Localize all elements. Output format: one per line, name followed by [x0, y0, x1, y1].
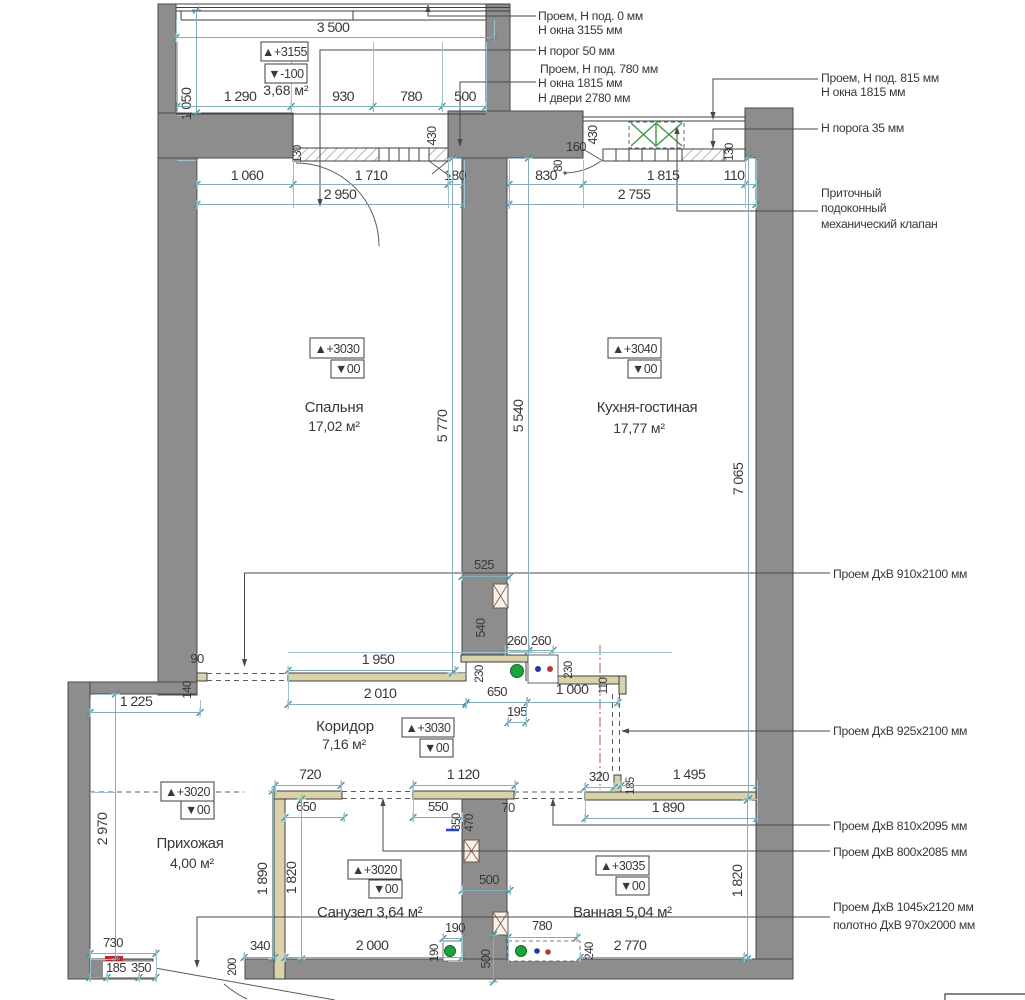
svg-text:1 815: 1 815 — [647, 168, 680, 184]
svg-text:2 755: 2 755 — [618, 187, 651, 203]
svg-text:Кухня-гостиная: Кухня-гостиная — [597, 399, 698, 416]
svg-text:780: 780 — [400, 89, 423, 105]
svg-text:Санузел 3,64 м²: Санузел 3,64 м² — [317, 904, 423, 921]
svg-text:190: 190 — [429, 944, 441, 962]
svg-text:525: 525 — [474, 557, 494, 572]
svg-text:▼00: ▼00 — [373, 882, 399, 896]
svg-text:17,77 м²: 17,77 м² — [613, 420, 665, 436]
svg-text:Н порога 35 мм: Н порога 35 мм — [821, 121, 904, 135]
svg-text:780: 780 — [532, 918, 552, 933]
svg-text:7 065: 7 065 — [731, 462, 747, 495]
svg-text:470: 470 — [464, 814, 476, 832]
svg-text:Проем ДхВ 925х2100 мм: Проем ДхВ 925х2100 мм — [833, 724, 967, 738]
svg-text:500: 500 — [479, 949, 493, 969]
svg-text:130: 130 — [724, 143, 736, 161]
svg-text:▼00: ▼00 — [424, 741, 450, 755]
svg-text:7,16 м²: 7,16 м² — [322, 736, 367, 752]
svg-text:1 890: 1 890 — [255, 862, 271, 895]
svg-text:350: 350 — [131, 960, 151, 975]
svg-text:1 820: 1 820 — [284, 861, 300, 894]
svg-text:190: 190 — [445, 920, 465, 935]
svg-text:▲+3030: ▲+3030 — [405, 721, 451, 735]
svg-text:350: 350 — [451, 813, 463, 831]
svg-text:Н порог 50 мм: Н порог 50 мм — [538, 44, 615, 58]
svg-text:200: 200 — [227, 958, 239, 976]
svg-text:1 120: 1 120 — [447, 767, 480, 783]
svg-text:2 770: 2 770 — [614, 938, 647, 954]
svg-text:подоконный: подоконный — [821, 201, 886, 215]
svg-text:Проем, Н под. 780 мм: Проем, Н под. 780 мм — [540, 62, 658, 76]
svg-text:Проем ДхВ 910х2100 мм: Проем ДхВ 910х2100 мм — [833, 567, 967, 581]
svg-text:2 000: 2 000 — [356, 938, 389, 954]
svg-text:полотно ДхВ 970х2000 мм: полотно ДхВ 970х2000 мм — [833, 918, 975, 932]
svg-text:▲+3030: ▲+3030 — [314, 342, 360, 356]
svg-text:2 950: 2 950 — [324, 187, 357, 203]
svg-text:70: 70 — [501, 800, 515, 815]
svg-text:430: 430 — [586, 125, 600, 145]
svg-text:5 770: 5 770 — [435, 409, 451, 442]
svg-text:500: 500 — [479, 872, 499, 887]
svg-text:1 495: 1 495 — [673, 767, 706, 783]
svg-text:110: 110 — [724, 168, 746, 184]
svg-text:500: 500 — [454, 89, 477, 105]
svg-text:260: 260 — [531, 633, 551, 648]
svg-text:140: 140 — [182, 681, 194, 699]
svg-text:80: 80 — [553, 160, 565, 172]
svg-text:720: 720 — [299, 767, 322, 783]
svg-text:▲+3035: ▲+3035 — [600, 859, 646, 873]
svg-text:340: 340 — [250, 938, 270, 953]
svg-text:▼00: ▼00 — [620, 879, 646, 893]
svg-text:650: 650 — [487, 684, 507, 699]
svg-text:230: 230 — [474, 665, 486, 683]
svg-text:Коридор: Коридор — [316, 718, 374, 735]
svg-text:1 950: 1 950 — [362, 652, 395, 668]
svg-text:730: 730 — [103, 935, 123, 950]
svg-text:1 060: 1 060 — [231, 168, 264, 184]
svg-text:▼00: ▼00 — [632, 362, 658, 376]
svg-text:Проем, Н под. 0 мм: Проем, Н под. 0 мм — [538, 9, 643, 23]
svg-text:Проем, Н под. 815 мм: Проем, Н под. 815 мм — [821, 71, 939, 85]
svg-text:550: 550 — [428, 799, 448, 814]
svg-text:Н окна 1815 мм: Н окна 1815 мм — [821, 85, 905, 99]
svg-text:Н окна 3155 мм: Н окна 3155 мм — [538, 23, 622, 37]
svg-text:1 290: 1 290 — [224, 89, 257, 105]
svg-text:180: 180 — [444, 168, 467, 184]
svg-text:▼00: ▼00 — [185, 803, 211, 817]
svg-text:Н окна 1815 мм: Н окна 1815 мм — [538, 76, 622, 90]
svg-text:Ванная 5,04 м²: Ванная 5,04 м² — [573, 904, 672, 921]
svg-text:3 500: 3 500 — [317, 20, 350, 36]
svg-text:1 000: 1 000 — [556, 682, 589, 698]
svg-text:430: 430 — [425, 126, 439, 146]
svg-text:260: 260 — [507, 633, 527, 648]
svg-text:Проем ДхВ 1045х2120 мм: Проем ДхВ 1045х2120 мм — [833, 900, 974, 914]
svg-text:Н двери 2780 мм: Н двери 2780 мм — [538, 91, 630, 105]
svg-text:320: 320 — [589, 769, 609, 784]
svg-text:185: 185 — [106, 960, 126, 975]
svg-text:▲+3155: ▲+3155 — [262, 45, 308, 59]
svg-text:▲+3040: ▲+3040 — [612, 342, 658, 356]
svg-text:160: 160 — [566, 139, 586, 154]
svg-text:195: 195 — [507, 704, 527, 719]
svg-text:1 225: 1 225 — [120, 694, 153, 710]
svg-text:▲+3020: ▲+3020 — [352, 863, 398, 877]
svg-text:1 890: 1 890 — [652, 800, 685, 816]
svg-text:Спальня: Спальня — [305, 399, 364, 416]
svg-text:1 710: 1 710 — [355, 168, 388, 184]
svg-text:▼-100: ▼-100 — [268, 67, 304, 81]
svg-text:Приточный: Приточный — [821, 186, 881, 200]
svg-text:2 010: 2 010 — [364, 686, 397, 702]
svg-text:930: 930 — [332, 89, 355, 105]
svg-text:Проем ДхВ 800х2085 мм: Проем ДхВ 800х2085 мм — [833, 845, 967, 859]
svg-text:1 820: 1 820 — [730, 864, 746, 897]
svg-text:Проем ДхВ 810х2095 мм: Проем ДхВ 810х2095 мм — [833, 819, 967, 833]
svg-text:110: 110 — [598, 678, 610, 695]
svg-text:▲+3020: ▲+3020 — [165, 785, 211, 799]
svg-text:230: 230 — [563, 661, 575, 679]
svg-text:5 540: 5 540 — [511, 399, 527, 432]
svg-text:540: 540 — [474, 618, 488, 638]
svg-text:3,68 м²: 3,68 м² — [263, 82, 309, 98]
svg-text:▼00: ▼00 — [335, 362, 361, 376]
svg-text:4,00 м²: 4,00 м² — [170, 855, 215, 871]
svg-text:90: 90 — [190, 651, 204, 666]
svg-text:2 970: 2 970 — [95, 812, 111, 845]
svg-text:Прихожая: Прихожая — [156, 835, 223, 852]
svg-text:механический клапан: механический клапан — [821, 217, 938, 231]
svg-text:17,02 м²: 17,02 м² — [308, 418, 360, 434]
